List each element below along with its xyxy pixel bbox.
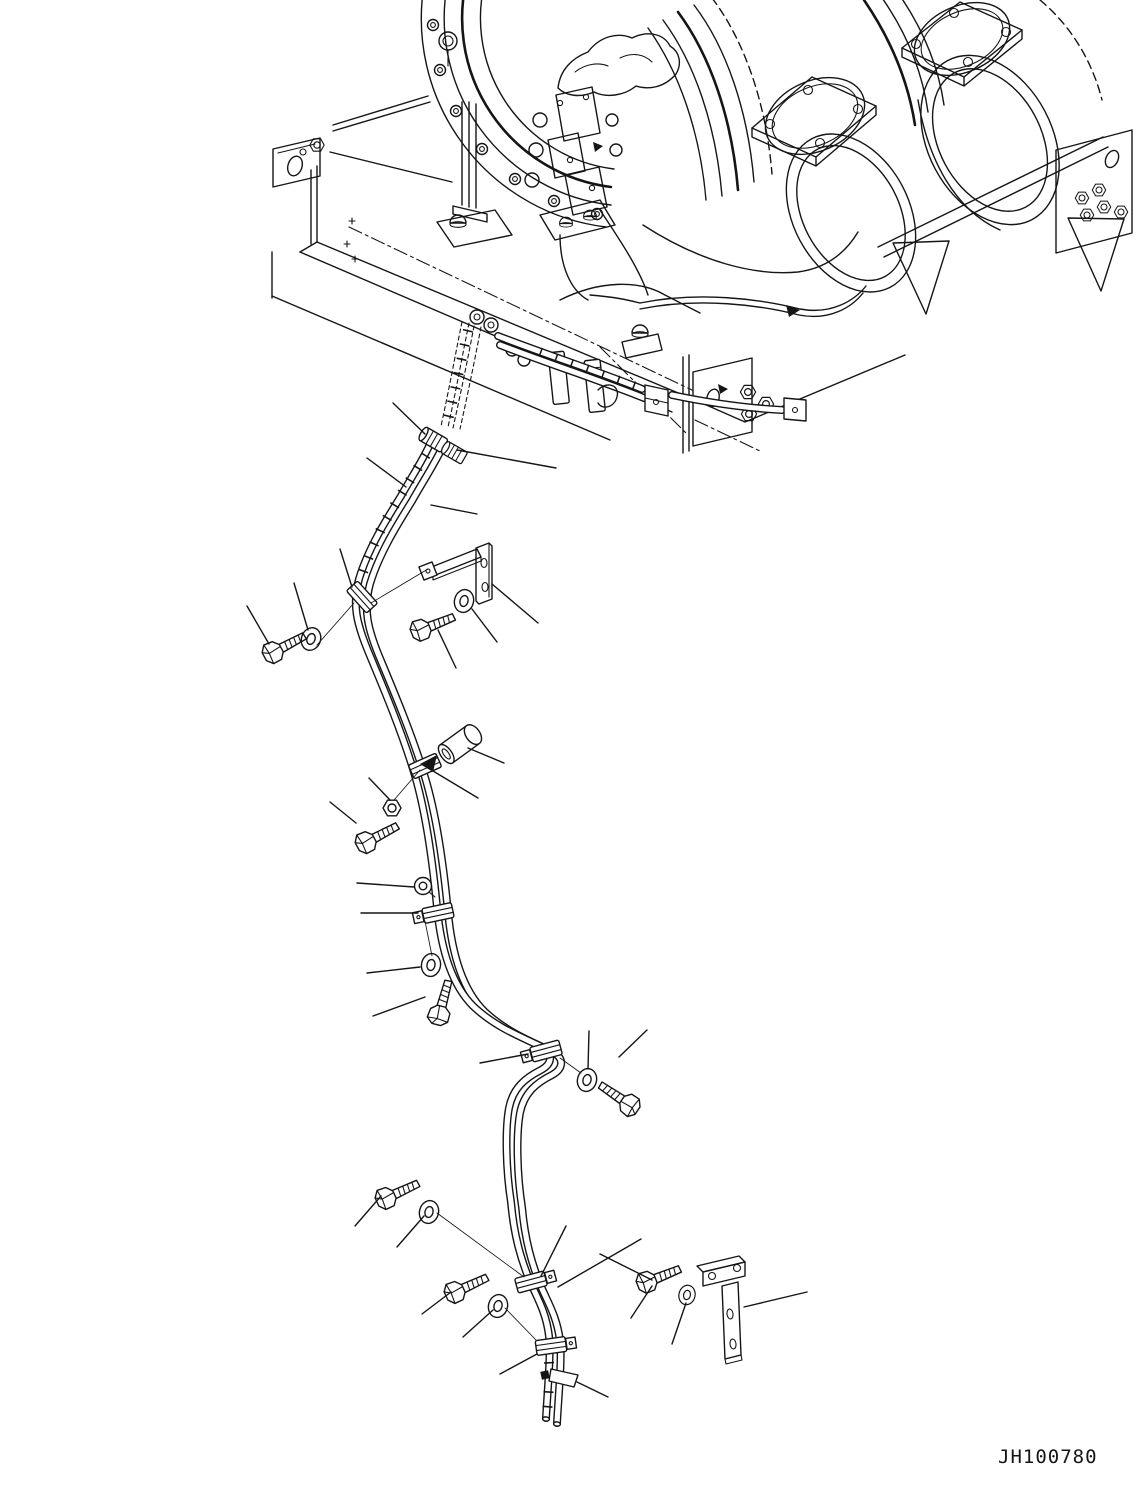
tube-routing-assembly — [346, 310, 578, 1426]
end-cap — [435, 722, 485, 767]
tube-clamp-4-installed — [535, 1335, 577, 1355]
parts-diagram-sheet: JH100780 — [0, 0, 1137, 1491]
leader-line — [247, 606, 269, 644]
l-bracket — [419, 543, 492, 604]
tube-open-end — [542, 1417, 549, 1422]
leader-line — [463, 1310, 493, 1337]
leader-line — [588, 1031, 589, 1069]
hex-bolt-7 — [442, 1267, 492, 1305]
leader-line — [294, 583, 308, 630]
tube-union-2 — [440, 440, 468, 464]
callout-parts — [259, 543, 745, 1364]
leader-line — [744, 1292, 807, 1307]
center-muffler — [643, 0, 942, 314]
hex-bolt-2 — [408, 607, 458, 644]
leader-line — [367, 967, 420, 973]
parts-diagram: JH100780 — [0, 0, 1137, 1491]
leader-line — [492, 584, 538, 623]
leader-line — [577, 1382, 608, 1397]
leader-line — [500, 1354, 537, 1374]
spring-washer-7 — [677, 1284, 697, 1306]
spring-washer-1 — [298, 625, 324, 653]
spring-washer-5 — [417, 1198, 441, 1225]
leader-line — [369, 778, 390, 800]
leader-line — [558, 1239, 641, 1287]
frame-piping — [498, 286, 866, 421]
leader-line — [600, 1254, 652, 1280]
right-muffler-open-end — [893, 31, 1087, 248]
support-post — [453, 102, 487, 222]
connector-line — [371, 569, 428, 603]
connector-line — [425, 921, 432, 956]
spring-washer-3 — [420, 952, 443, 978]
leader-line — [480, 1054, 528, 1063]
leader-line — [355, 1196, 381, 1226]
hex-bolt-3 — [352, 816, 402, 856]
leader-line — [433, 771, 478, 798]
hidden-upper-tube-stub — [441, 322, 481, 429]
leader-line — [340, 549, 352, 587]
center-muffler-open-end — [760, 112, 941, 315]
spring-washer-4 — [575, 1066, 599, 1093]
leader-line — [330, 802, 356, 823]
connector-line — [505, 1308, 536, 1340]
hex-bolt-5 — [594, 1077, 643, 1120]
leader-line — [431, 505, 477, 514]
muffler-assembly — [272, 0, 1132, 453]
leader-line — [367, 458, 406, 487]
leader-line — [393, 403, 425, 434]
drawing-number: JH100780 — [998, 1446, 1098, 1468]
left-muffler-end-face — [421, 0, 614, 227]
leader-line — [672, 1303, 686, 1344]
gusset-plate — [1068, 218, 1124, 291]
leader-line — [457, 450, 556, 468]
hex-bolt-6 — [373, 1173, 423, 1211]
leader-line — [373, 997, 425, 1016]
leader-line — [438, 630, 456, 668]
hex-nut-1 — [383, 800, 401, 816]
connector-line — [317, 603, 354, 645]
leader-line — [422, 1292, 451, 1314]
leader-line — [468, 748, 504, 763]
leader-line — [397, 1216, 424, 1247]
bolt-ring — [428, 20, 603, 220]
nut-plate — [1056, 130, 1132, 253]
leader-line — [619, 1030, 647, 1057]
gusset-plate — [893, 241, 949, 314]
tube-open-end — [553, 1422, 560, 1427]
spring-washer-6 — [486, 1292, 510, 1319]
hex-bolt-8 — [634, 1259, 684, 1296]
leader-line — [541, 1226, 566, 1276]
leader-line — [472, 609, 497, 642]
breather-cap — [439, 32, 457, 66]
right-muffler — [864, 0, 1102, 249]
t-bracket — [697, 1256, 745, 1364]
leader-line — [357, 883, 414, 887]
valve-actuator-cluster — [525, 34, 679, 303]
